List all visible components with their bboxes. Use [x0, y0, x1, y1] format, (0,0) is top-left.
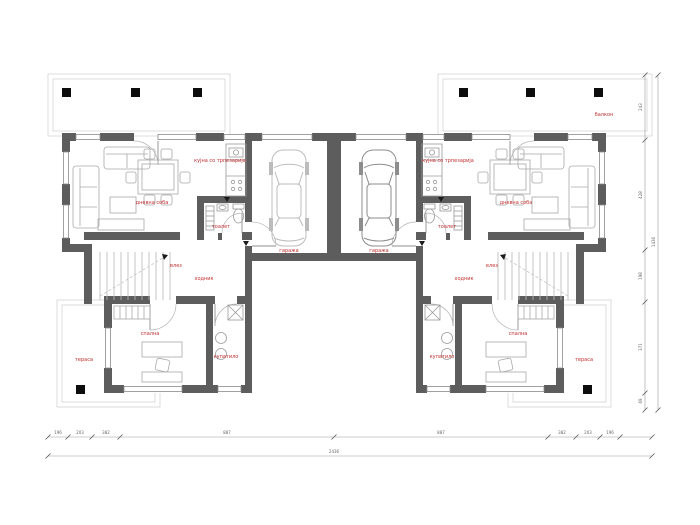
dim-bottom-2: 382 [102, 430, 110, 435]
dim-right-1: 428 [638, 191, 643, 199]
dim-bottom-5: 382 [558, 430, 566, 435]
unit-left [62, 133, 334, 393]
label-wc-right: тоалет [438, 224, 456, 230]
label-terrace-right: тераса [575, 357, 593, 363]
dim-right-total: 1436 [651, 236, 656, 247]
terrace-top-left [48, 74, 230, 136]
dim-right-3: 371 [638, 343, 643, 351]
dim-right-4: 69 [638, 398, 643, 404]
dimension-chain-bottom: 196 203 382 887 887 382 203 196 2436 [46, 430, 655, 459]
label-living-left: дневна соба [136, 200, 169, 206]
label-bedroom-left: спална [141, 331, 160, 337]
label-hall-left: ходник [194, 276, 213, 282]
label-bath-right: купатило [430, 354, 455, 360]
label-garage-left: гаража [279, 248, 299, 254]
car-right [359, 150, 399, 246]
label-bath-left: купатило [214, 354, 239, 360]
dim-bottom-7: 196 [606, 430, 614, 435]
dim-bottom-total: 2436 [329, 449, 340, 454]
floor-plan-page: дневна соба дневна соба кујна со трпезар… [0, 0, 700, 525]
label-terrace-left: тераса [75, 357, 93, 363]
dim-bottom-0: 196 [54, 430, 62, 435]
label-living-right: дневна соба [500, 200, 533, 206]
label-balcony: балкон [595, 112, 614, 118]
label-kitchen-right: кујна со трпезарија [422, 158, 474, 164]
label-wc-left: тоалет [212, 224, 230, 230]
dim-right-0: 243 [638, 103, 643, 111]
dimension-chain-right: 243 428 198 371 69 1436 [638, 73, 661, 413]
label-entry-left: влез [170, 263, 182, 269]
label-garage-right: гаража [369, 248, 389, 254]
dim-bottom-6: 203 [584, 430, 592, 435]
unit-right [334, 133, 606, 393]
floor-plan-drawing: дневна соба дневна соба кујна со трпезар… [0, 0, 700, 525]
car-left [269, 150, 309, 246]
dim-bottom-3: 887 [223, 430, 231, 435]
label-bedroom-right: спална [509, 331, 528, 337]
label-hall-right: ходник [454, 276, 473, 282]
dim-bottom-4: 887 [437, 430, 445, 435]
label-entry-right: влез [486, 263, 498, 269]
dim-right-2: 198 [638, 272, 643, 280]
terrace-top-right [438, 74, 652, 136]
label-kitchen-left: кујна со трпезарија [194, 158, 246, 164]
dim-bottom-1: 203 [76, 430, 84, 435]
